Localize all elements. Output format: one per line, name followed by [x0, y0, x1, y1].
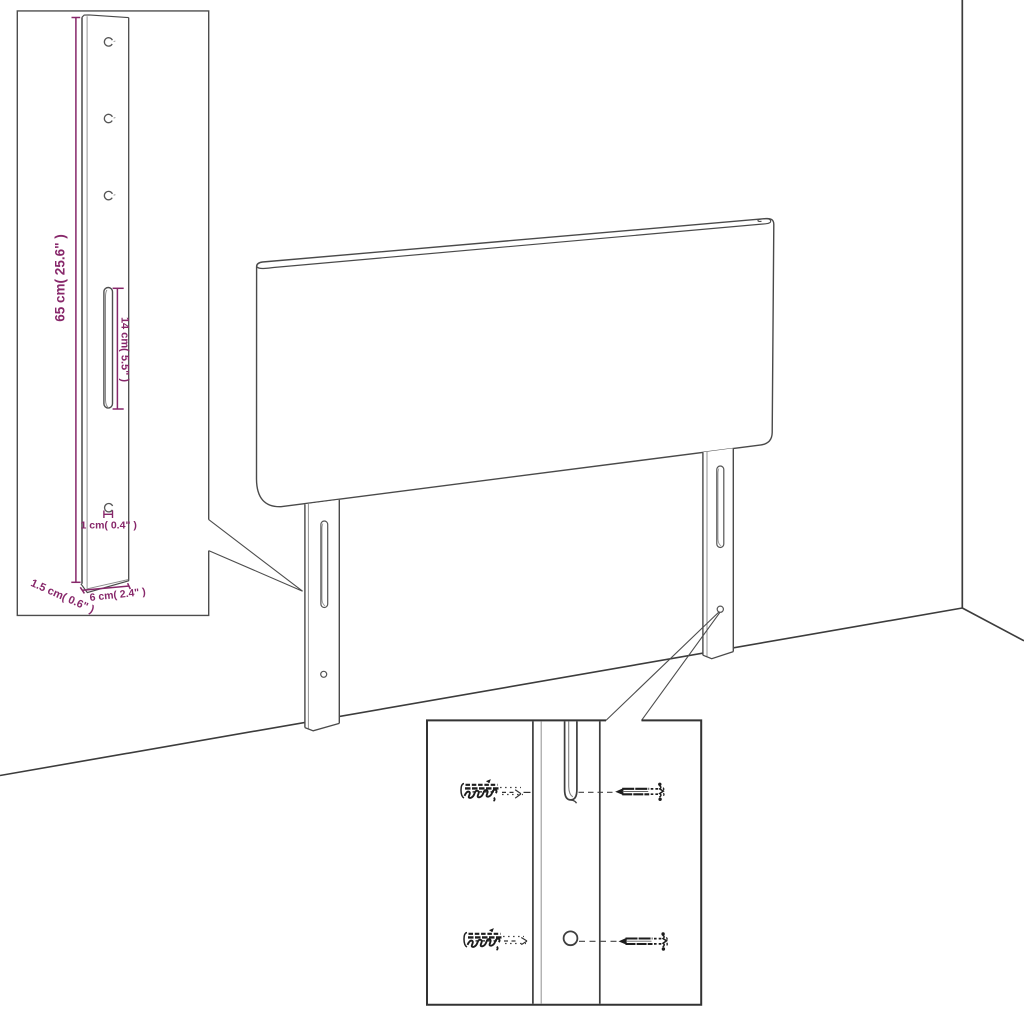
- svg-text:1 cm( 0.4" ): 1 cm( 0.4" ): [81, 520, 137, 532]
- svg-text:14 cm( 5.5" ): 14 cm( 5.5" ): [118, 317, 130, 382]
- svg-text:65 cm( 25.6" ): 65 cm( 25.6" ): [53, 234, 68, 321]
